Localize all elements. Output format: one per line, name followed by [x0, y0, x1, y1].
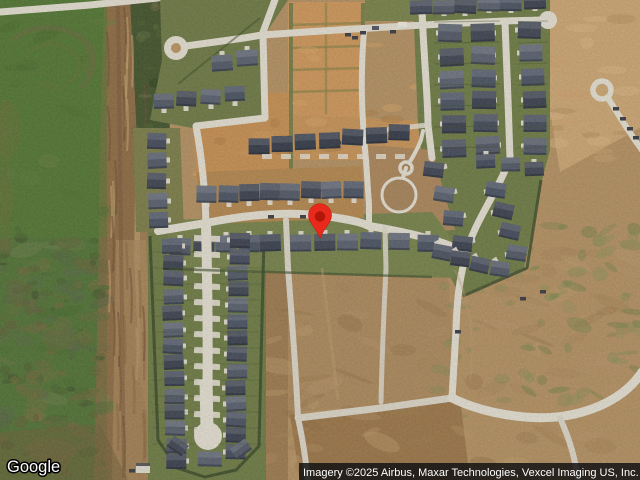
- svg-text:Imagery ©2025 Airbus, Maxar Te: Imagery ©2025 Airbus, Maxar Technologies…: [303, 467, 639, 479]
- svg-text:Google: Google: [7, 458, 60, 476]
